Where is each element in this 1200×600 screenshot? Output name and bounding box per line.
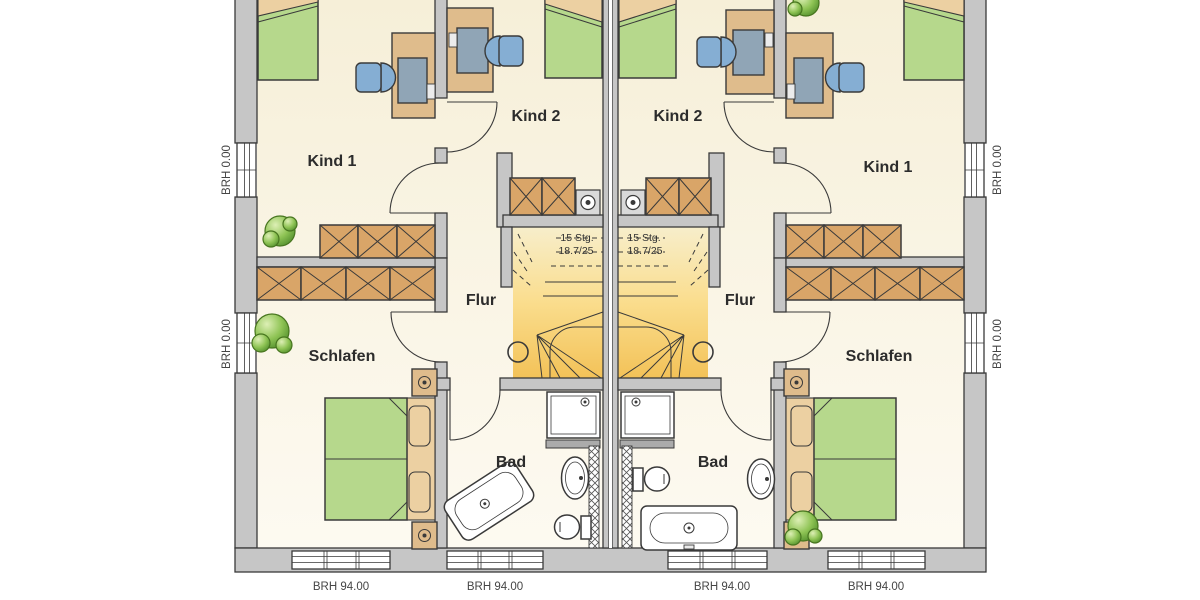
- sill-label-right-upper: BRH 0.00: [992, 145, 1004, 195]
- room-label-kind1-left: Kind 1: [308, 153, 357, 170]
- appliance-left: [576, 190, 600, 215]
- appliance-right: [621, 190, 645, 215]
- window-left-upper: [237, 143, 256, 197]
- wardrobe-nook-right: [646, 178, 711, 215]
- sill-label-left-upper: BRH 0.00: [221, 145, 233, 195]
- shower-left: [547, 392, 600, 438]
- wardrobe-kind1-right: [786, 225, 901, 258]
- room-label-kind2-left: Kind 2: [512, 108, 561, 125]
- sill-label-bottom-2: BRH 94.00: [467, 581, 523, 593]
- toilet-right: [633, 467, 670, 491]
- stair-annotation-right-line2: 18.7/25: [627, 245, 662, 257]
- party-wall-gap: [609, 0, 612, 548]
- installation-wall-right: [622, 446, 632, 548]
- plant-kind1-right: [788, 0, 819, 16]
- room-label-flur-right: Flur: [725, 292, 755, 309]
- room-label-schlafen-right: Schlafen: [846, 348, 913, 365]
- sill-label-bottom-3: BRH 94.00: [694, 581, 750, 593]
- sill-label-right-lower: BRH 0.00: [992, 319, 1004, 369]
- window-bottom-2: [447, 551, 543, 569]
- window-right-upper: [965, 143, 984, 197]
- shower-right: [621, 392, 674, 438]
- bed-kind2-left: [545, 0, 602, 78]
- window-bottom-1: [292, 551, 390, 569]
- window-bottom-3: [668, 551, 767, 569]
- room-label-kind1-right: Kind 1: [864, 159, 913, 176]
- stair-annotation-left-line1: 15 Stg.: [560, 232, 593, 244]
- bed-kind1-right: [904, 0, 964, 80]
- wardrobe-schlafen-right: [786, 267, 964, 300]
- stair-annotation-right-line1: 15 Stg.: [627, 232, 660, 244]
- floor-plan-canvas: Kind 1 Kind 2 Flur Schlafen Bad Kind 2 K…: [0, 0, 1200, 600]
- room-label-bad-right: Bad: [698, 454, 728, 471]
- bathtub-right: [641, 506, 737, 550]
- sill-label-left-lower: BRH 0.00: [221, 319, 233, 369]
- wardrobe-schlafen-left: [257, 267, 435, 300]
- room-label-flur-left: Flur: [466, 292, 496, 309]
- wardrobe-kind1-left: [320, 225, 435, 258]
- room-label-kind2-right: Kind 2: [654, 108, 703, 125]
- bed-kind1-left: [258, 0, 318, 80]
- room-label-schlafen-left: Schlafen: [309, 348, 376, 365]
- window-right-lower: [965, 313, 984, 373]
- sill-label-bottom-1: BRH 94.00: [313, 581, 369, 593]
- washbasin-right: [748, 459, 775, 499]
- washbasin-left: [562, 457, 589, 499]
- floor-plan-drawing: Kind 1 Kind 2 Flur Schlafen Bad Kind 2 K…: [0, 0, 1200, 600]
- bed-kind2-right: [619, 0, 676, 78]
- room-label-bad-left: Bad: [496, 454, 526, 471]
- stair-annotation-left-line2: 18.7/25: [558, 245, 593, 257]
- toilet-left: [555, 515, 592, 539]
- wardrobe-nook-left: [510, 178, 575, 215]
- sill-label-bottom-4: BRH 94.00: [848, 581, 904, 593]
- window-bottom-4: [828, 551, 925, 569]
